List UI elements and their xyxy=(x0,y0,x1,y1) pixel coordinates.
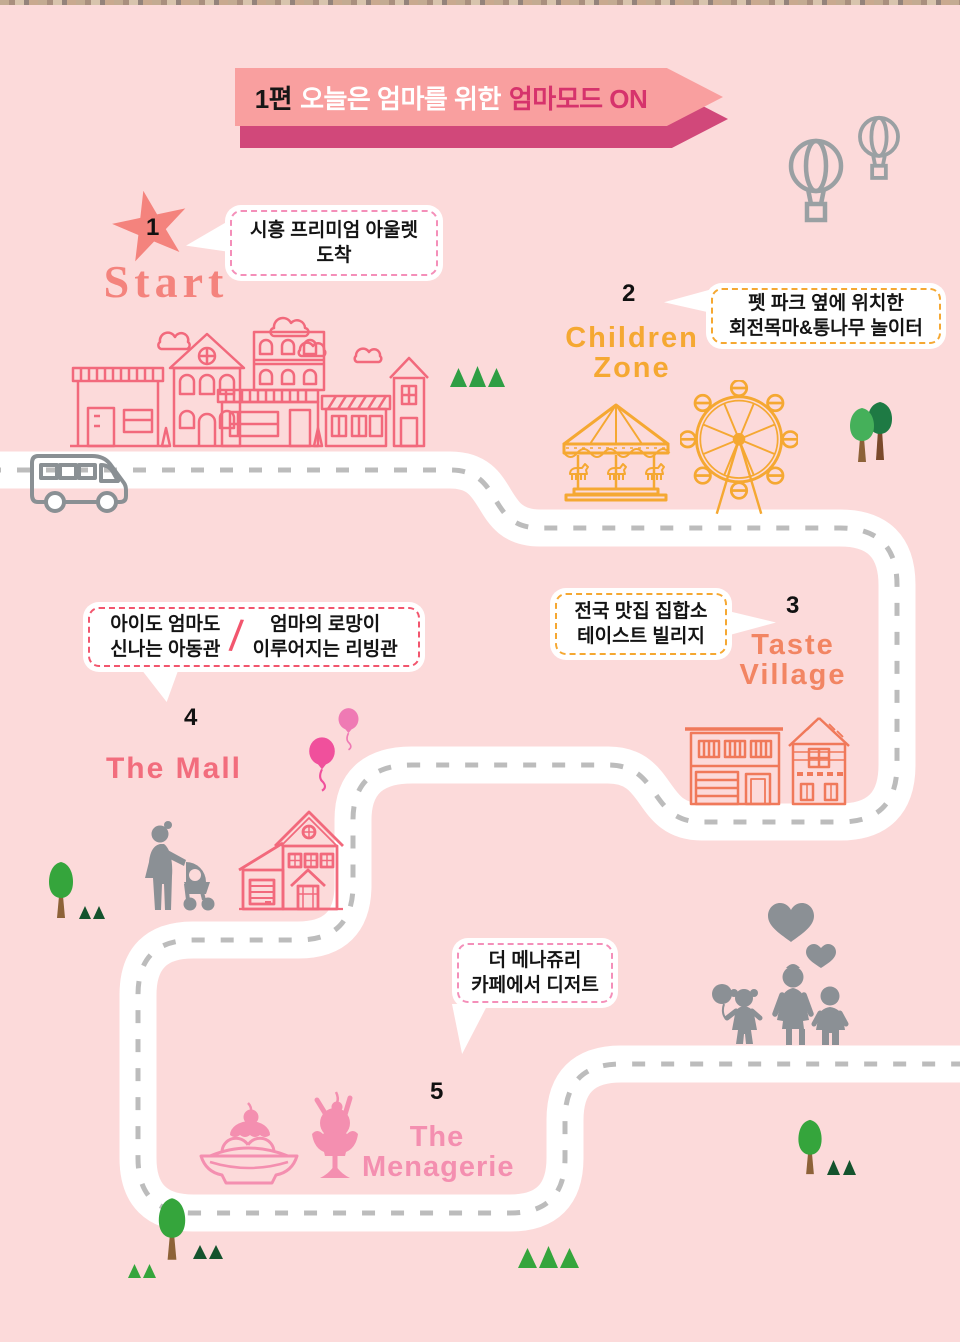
bubble-the-mall-left: 아이도 엄마도 신나는 아동관 xyxy=(110,612,220,662)
bubble-taste-village: 전국 맛집 집합소 테이스트 빌리지 xyxy=(550,588,732,660)
ice-cream-sundae-icon xyxy=(304,1088,366,1184)
stop-number-5: 5 xyxy=(430,1078,443,1106)
stop-number-4: 4 xyxy=(184,704,197,732)
restaurant-buildings-illustration xyxy=(683,716,855,806)
town-street-illustration xyxy=(68,316,432,452)
stop-label-start: Start xyxy=(96,258,236,306)
bubble-the-mall-right: 엄마의 로망이 이루어지는 리빙관 xyxy=(253,612,398,662)
carousel-icon xyxy=(556,402,676,502)
banner-title: 오늘은 엄마를 위한 xyxy=(300,79,501,116)
round-tree-icon xyxy=(793,1118,827,1176)
hot-air-balloon-icon xyxy=(854,114,904,184)
ferris-wheel-icon xyxy=(680,380,798,516)
stop-number-1: 1 xyxy=(146,214,159,242)
balloon-icon xyxy=(336,706,361,752)
heart-icon xyxy=(806,944,836,968)
stop-label-the-mall: The Mall xyxy=(104,753,244,785)
mall-house-icon xyxy=(237,806,345,912)
bus-icon xyxy=(28,450,144,514)
banner-highlight: 엄마모드 ON xyxy=(509,79,647,116)
heart-icon xyxy=(768,903,814,942)
round-tree-icon xyxy=(46,860,76,920)
route-map-infographic: 1편 오늘은 엄마를 위한 엄마모드 ON 1 Start 시흥 프리미엄 아울… xyxy=(0,0,960,1342)
stop-number-2: 2 xyxy=(622,280,635,308)
bubble-menagerie: 더 메나쥬리 카페에서 디저트 xyxy=(452,938,618,1008)
stop-label-menagerie: The Menagerie xyxy=(362,1122,512,1183)
episode-banner: 1편 오늘은 엄마를 위한 엄마모드 ON xyxy=(235,68,723,126)
bubble-start: 시흥 프리미엄 아울렛 도착 xyxy=(225,205,443,281)
stop-label-children-zone: Children Zone xyxy=(562,323,702,384)
banner-episode-number: 1편 xyxy=(255,79,292,116)
stop-label-taste-village: Taste Village xyxy=(728,630,858,691)
banana-split-icon xyxy=(196,1098,302,1186)
round-tree-icon xyxy=(155,1196,189,1262)
family-icon xyxy=(698,894,858,1046)
round-tree-icon xyxy=(842,400,896,464)
bubble-the-mall: 아이도 엄마도 신나는 아동관 / 엄마의 로망이 이루어지는 리빙관 xyxy=(83,602,425,672)
stop-number-3: 3 xyxy=(786,592,799,620)
balloon-icon xyxy=(306,736,338,792)
bubble-divider: / xyxy=(228,617,244,658)
mother-with-stroller-icon xyxy=(140,820,228,912)
hot-air-balloon-icon xyxy=(784,136,848,228)
bubble-children-zone: 펫 파크 옆에 위치한 회전목마&통나무 놀이터 xyxy=(706,283,946,349)
